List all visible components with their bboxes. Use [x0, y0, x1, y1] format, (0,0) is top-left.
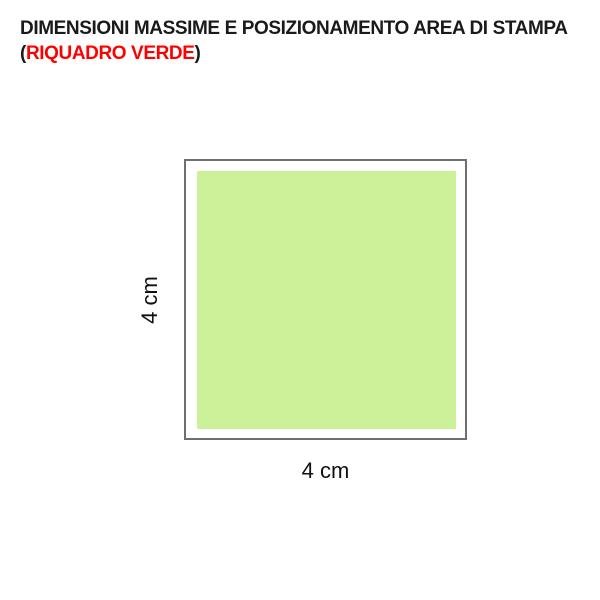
- page-title: DIMENSIONI MASSIME E POSIZIONAMENTO AREA…: [20, 17, 568, 66]
- title-paren-close: ): [195, 43, 201, 64]
- height-dimension-label: 4 cm: [136, 258, 164, 342]
- title-line1: DIMENSIONI MASSIME E POSIZIONAMENTO AREA…: [20, 17, 568, 42]
- title-line2: (RIQUADRO VERDE): [20, 42, 568, 67]
- title-highlight-riquadro-verde: RIQUADRO VERDE: [26, 43, 195, 64]
- print-area-outline: [184, 159, 467, 440]
- width-dimension-label: 4 cm: [184, 458, 467, 484]
- print-area-green-square: [197, 171, 456, 429]
